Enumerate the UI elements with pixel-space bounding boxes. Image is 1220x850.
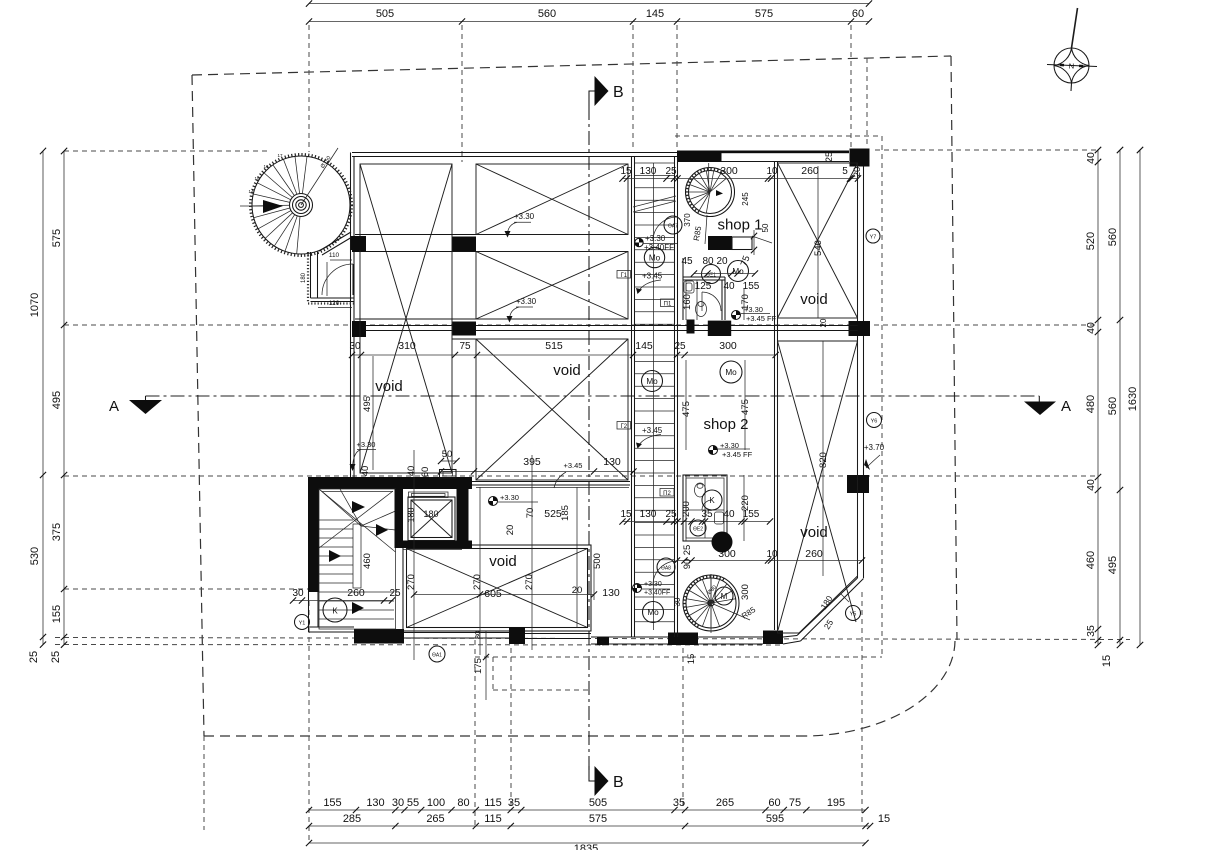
svg-text:530: 530 xyxy=(29,547,41,565)
svg-text:30: 30 xyxy=(597,638,606,646)
svg-text:25: 25 xyxy=(674,341,686,352)
svg-text:80: 80 xyxy=(702,256,714,267)
svg-text:+3.45: +3.45 xyxy=(564,461,583,470)
svg-text:+3.45: +3.45 xyxy=(642,426,663,435)
svg-text:520: 520 xyxy=(1085,232,1097,250)
svg-text:N: N xyxy=(1069,62,1074,71)
svg-text:60: 60 xyxy=(852,8,864,20)
svg-text:ΘΑ1: ΘΑ1 xyxy=(432,653,442,659)
svg-text:16: 16 xyxy=(263,164,269,169)
svg-text:35: 35 xyxy=(508,797,520,809)
svg-text:495: 495 xyxy=(1107,556,1119,574)
svg-text:+3.45: +3.45 xyxy=(642,272,663,281)
svg-text:15: 15 xyxy=(1101,655,1113,667)
svg-text:Π1: Π1 xyxy=(664,301,672,307)
svg-text:265: 265 xyxy=(716,797,734,809)
svg-text:260: 260 xyxy=(347,587,365,599)
svg-text:Γ1: Γ1 xyxy=(620,273,627,279)
svg-text:14: 14 xyxy=(248,189,254,194)
svg-text:495: 495 xyxy=(362,396,373,412)
svg-text:1835: 1835 xyxy=(574,843,598,850)
svg-text:+3.45 FF: +3.45 FF xyxy=(746,314,777,323)
svg-text:ΘΕ2: ΘΕ2 xyxy=(693,527,703,533)
svg-text:Y5: Y5 xyxy=(850,612,857,618)
svg-text:25: 25 xyxy=(28,651,40,663)
svg-text:285: 285 xyxy=(343,813,361,825)
svg-text:17: 17 xyxy=(277,153,283,158)
svg-text:505: 505 xyxy=(589,797,607,809)
svg-text:575: 575 xyxy=(755,8,773,20)
svg-text:25: 25 xyxy=(682,545,693,556)
svg-text:ΘΑ8: ΘΑ8 xyxy=(661,566,671,572)
svg-text:115: 115 xyxy=(484,813,502,825)
svg-text:120: 120 xyxy=(329,300,340,307)
svg-text:70: 70 xyxy=(525,508,536,519)
svg-text:40: 40 xyxy=(360,466,371,477)
svg-text:90: 90 xyxy=(682,559,693,570)
svg-text:130: 130 xyxy=(602,587,620,599)
svg-text:40: 40 xyxy=(1085,152,1097,164)
svg-text:+3.30: +3.30 xyxy=(500,493,519,502)
svg-text:Mo: Mo xyxy=(647,608,659,617)
svg-text:shop 2: shop 2 xyxy=(703,416,748,433)
svg-text:300: 300 xyxy=(740,584,751,600)
svg-text:60: 60 xyxy=(768,797,780,809)
svg-text:25: 25 xyxy=(665,166,677,177)
svg-text:40: 40 xyxy=(1085,322,1097,334)
svg-text:10: 10 xyxy=(766,166,778,177)
svg-text:820: 820 xyxy=(818,452,829,468)
svg-text:20: 20 xyxy=(505,525,516,536)
svg-text:15: 15 xyxy=(620,166,632,177)
svg-text:shop 1: shop 1 xyxy=(717,217,762,234)
svg-text:300: 300 xyxy=(720,165,738,177)
svg-text:void: void xyxy=(553,362,581,379)
svg-text:505: 505 xyxy=(376,8,394,20)
svg-text:30: 30 xyxy=(473,631,482,639)
svg-text:60: 60 xyxy=(420,467,431,478)
svg-text:180: 180 xyxy=(423,509,438,519)
svg-text:155: 155 xyxy=(51,605,63,623)
svg-text:480: 480 xyxy=(1085,395,1097,413)
svg-text:560: 560 xyxy=(538,8,556,20)
svg-text:35: 35 xyxy=(673,797,685,809)
svg-text:ΘΑ7: ΘΑ7 xyxy=(668,224,678,230)
svg-text:25: 25 xyxy=(50,651,62,663)
svg-text:1630: 1630 xyxy=(1127,387,1139,411)
svg-text:475: 475 xyxy=(740,399,751,415)
svg-text:515: 515 xyxy=(545,340,563,352)
svg-text:115: 115 xyxy=(484,797,502,809)
svg-text:10: 10 xyxy=(766,549,778,560)
svg-text:K: K xyxy=(332,607,338,616)
svg-text:40: 40 xyxy=(723,509,735,520)
svg-text:void: void xyxy=(375,378,403,395)
svg-text:M: M xyxy=(721,592,728,601)
svg-text:475: 475 xyxy=(681,401,692,417)
svg-text:B: B xyxy=(613,774,624,791)
svg-text:B: B xyxy=(613,84,624,101)
svg-text:Y7: Y7 xyxy=(870,235,877,241)
svg-text:310: 310 xyxy=(398,340,416,352)
svg-text:130: 130 xyxy=(603,456,621,468)
svg-text:Mo: Mo xyxy=(646,377,658,386)
svg-text:35: 35 xyxy=(1085,625,1097,637)
svg-text:40: 40 xyxy=(1085,479,1097,491)
svg-text:20: 20 xyxy=(819,318,828,327)
svg-text:40: 40 xyxy=(723,281,735,292)
svg-text:40: 40 xyxy=(406,466,417,477)
svg-text:20: 20 xyxy=(716,256,728,267)
svg-text:A: A xyxy=(1061,398,1071,415)
svg-text:void: void xyxy=(489,553,517,570)
svg-text:145: 145 xyxy=(635,340,653,352)
svg-text:Γ2: Γ2 xyxy=(620,424,627,430)
svg-text:270: 270 xyxy=(472,574,483,590)
svg-text:125: 125 xyxy=(695,281,712,292)
svg-text:155: 155 xyxy=(743,281,760,292)
svg-text:+3.45 FF: +3.45 FF xyxy=(722,450,753,459)
svg-text:30: 30 xyxy=(349,341,361,352)
svg-text:540: 540 xyxy=(813,240,824,256)
svg-text:460: 460 xyxy=(362,553,373,569)
svg-text:Mo: Mo xyxy=(725,368,737,377)
svg-text:575: 575 xyxy=(589,813,607,825)
svg-text:185: 185 xyxy=(560,505,571,521)
svg-text:160: 160 xyxy=(682,294,693,310)
svg-text:void: void xyxy=(800,291,828,308)
svg-text:260: 260 xyxy=(801,165,819,177)
svg-text:80: 80 xyxy=(457,797,469,809)
svg-text:+3.30: +3.30 xyxy=(516,297,537,306)
svg-text:15: 15 xyxy=(686,654,697,665)
svg-text:+3.30: +3.30 xyxy=(644,581,662,588)
svg-text:K: K xyxy=(709,496,715,505)
svg-text:495: 495 xyxy=(51,391,63,409)
svg-text:155: 155 xyxy=(323,797,341,809)
svg-text:245: 245 xyxy=(741,192,750,206)
svg-text:+3.30: +3.30 xyxy=(744,305,763,314)
svg-text:50: 50 xyxy=(442,449,453,460)
svg-text:30: 30 xyxy=(673,597,682,606)
svg-text:195: 195 xyxy=(827,797,845,809)
svg-text:595: 595 xyxy=(766,813,784,825)
svg-text:370: 370 xyxy=(683,213,692,227)
svg-text:5: 5 xyxy=(842,166,848,177)
svg-text:25: 25 xyxy=(389,588,401,599)
svg-text:void: void xyxy=(800,524,828,541)
svg-text:145: 145 xyxy=(646,8,664,20)
svg-text:300: 300 xyxy=(719,340,737,352)
svg-text:260: 260 xyxy=(805,548,823,560)
svg-text:+3.40FF: +3.40FF xyxy=(644,590,670,597)
svg-text:110: 110 xyxy=(329,252,340,259)
svg-text:75: 75 xyxy=(789,797,801,809)
svg-text:605: 605 xyxy=(484,588,502,600)
svg-text:Π2: Π2 xyxy=(663,491,671,497)
svg-text:30: 30 xyxy=(292,588,304,599)
svg-text:300: 300 xyxy=(718,548,736,560)
svg-text:50: 50 xyxy=(761,223,770,232)
svg-text:1070: 1070 xyxy=(29,293,41,317)
svg-text:575: 575 xyxy=(51,229,63,247)
svg-text:130: 130 xyxy=(640,509,657,520)
svg-text:+3.30: +3.30 xyxy=(514,212,535,221)
svg-text:A: A xyxy=(109,398,119,415)
svg-text:Mo: Mo xyxy=(649,254,661,263)
svg-text:180: 180 xyxy=(301,272,307,283)
svg-text:45: 45 xyxy=(681,256,693,267)
svg-text:75: 75 xyxy=(459,341,471,352)
svg-text:+3.40FF: +3.40FF xyxy=(644,243,674,252)
svg-text:100: 100 xyxy=(427,797,445,809)
svg-text:560: 560 xyxy=(1107,397,1119,415)
svg-text:35: 35 xyxy=(701,509,713,520)
svg-text:Y1: Y1 xyxy=(299,621,306,627)
svg-text:460: 460 xyxy=(1085,551,1097,569)
svg-text:175: 175 xyxy=(473,658,484,674)
svg-text:180: 180 xyxy=(406,507,416,522)
svg-text:265: 265 xyxy=(426,813,444,825)
svg-text:375: 375 xyxy=(51,523,63,541)
svg-text:270: 270 xyxy=(524,574,535,590)
svg-text:+3.70: +3.70 xyxy=(864,443,885,452)
svg-text:270: 270 xyxy=(406,574,417,590)
svg-text:130: 130 xyxy=(366,797,384,809)
svg-text:Y6: Y6 xyxy=(871,419,878,425)
svg-text:15: 15 xyxy=(620,509,632,520)
svg-text:25: 25 xyxy=(665,509,677,520)
svg-text:30: 30 xyxy=(392,797,404,809)
svg-text:130: 130 xyxy=(640,166,657,177)
svg-text:55: 55 xyxy=(407,797,419,809)
svg-text:220: 220 xyxy=(740,495,751,511)
svg-text:20: 20 xyxy=(852,167,863,178)
svg-text:15: 15 xyxy=(878,813,890,825)
svg-text:15: 15 xyxy=(254,176,260,181)
svg-text:+3.30: +3.30 xyxy=(645,234,666,243)
svg-text:560: 560 xyxy=(1107,228,1119,246)
svg-text:25: 25 xyxy=(824,152,835,163)
